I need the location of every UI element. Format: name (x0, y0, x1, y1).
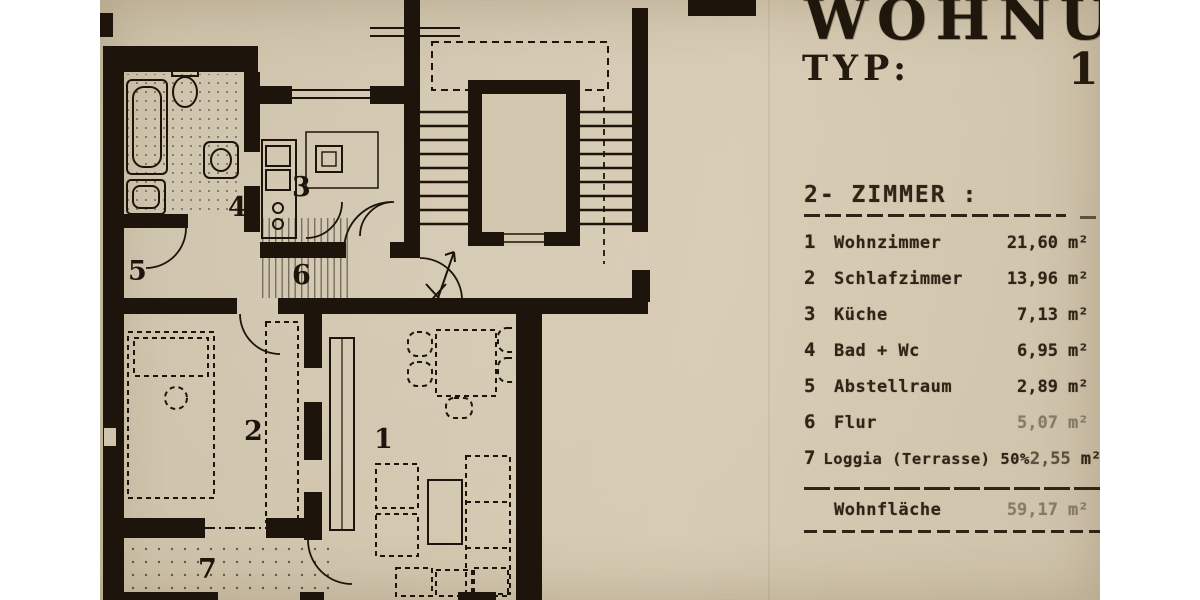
total-row: Wohnfläche 59,17 m² (804, 490, 1100, 530)
total-value: 59,17 (996, 500, 1058, 520)
room-area-unit: m² (1068, 233, 1100, 253)
paper-crease (768, 0, 770, 600)
total-label: Wohnfläche (834, 500, 996, 520)
room-number: 4 (804, 339, 834, 361)
room-area: 21,60 (996, 233, 1058, 253)
table-rows: 1 Wohnzimmer 21,60 m² 2 Schlafzimmer 13,… (804, 231, 1100, 483)
room-area-unit: m² (1068, 377, 1100, 397)
type-value: 1B (1068, 44, 1100, 95)
room-area: 6,95 (996, 341, 1058, 361)
room-area: 7,13 (996, 305, 1058, 325)
table-row: 1 Wohnzimmer 21,60 m² (804, 231, 1100, 267)
room-name: Loggia (Terrasse) 50% (823, 450, 1029, 468)
room-area: 5,07 (996, 413, 1058, 433)
room-area-unit: m² (1068, 305, 1100, 325)
room-name: Abstellraum (834, 377, 996, 397)
room-area: 13,96 (996, 269, 1058, 289)
scanned-floorplan-page: WOHNUNG TYP: 1B 2- ZIMMER : 1 Wohnzimmer… (0, 0, 1200, 600)
room-name: Schlafzimmer (834, 269, 996, 289)
room-number: 5 (804, 375, 834, 397)
room-name: Wohnzimmer (834, 233, 996, 253)
total-unit: m² (1068, 500, 1100, 520)
heading-underline (804, 214, 1066, 217)
table-row: 4 Bad + Wc 6,95 m² (804, 339, 1100, 375)
room-area: 2,89 (996, 377, 1058, 397)
type-row: TYP: 1B (802, 48, 1100, 108)
room-area: 2,55 (1030, 449, 1071, 469)
bottom-divider (804, 530, 1100, 533)
photo-paper: WOHNUNG TYP: 1B 2- ZIMMER : 1 Wohnzimmer… (100, 0, 1100, 600)
room-number: 7 (804, 447, 823, 469)
room-number: 3 (804, 303, 834, 325)
room-area-unit: m² (1068, 341, 1100, 361)
room-name: Flur (834, 413, 996, 433)
table-row: 6 Flur 5,07 m² (804, 411, 1100, 447)
type-label: TYP: (802, 48, 911, 89)
page-title: WOHNUNG (804, 0, 1100, 53)
room-area-unit: m² (1068, 269, 1100, 289)
table-row: 7 Loggia (Terrasse) 50% 2,55 m² (804, 447, 1100, 483)
table-row: 2 Schlafzimmer 13,96 m² (804, 267, 1100, 303)
room-area-table: 2- ZIMMER : 1 Wohnzimmer 21,60 m² 2 Schl… (804, 182, 1100, 533)
room-number: 1 (804, 231, 834, 253)
room-number: 2 (804, 267, 834, 289)
room-name: Bad + Wc (834, 341, 996, 361)
room-area-unit: m² (1068, 413, 1100, 433)
table-row: 5 Abstellraum 2,89 m² (804, 375, 1100, 411)
room-area-unit: m² (1081, 449, 1100, 469)
table-heading: 2- ZIMMER : (804, 182, 1100, 208)
table-row: 3 Küche 7,13 m² (804, 303, 1100, 339)
room-name: Küche (834, 305, 996, 325)
heading-tick-mark (1080, 216, 1096, 219)
room-number: 6 (804, 411, 834, 433)
